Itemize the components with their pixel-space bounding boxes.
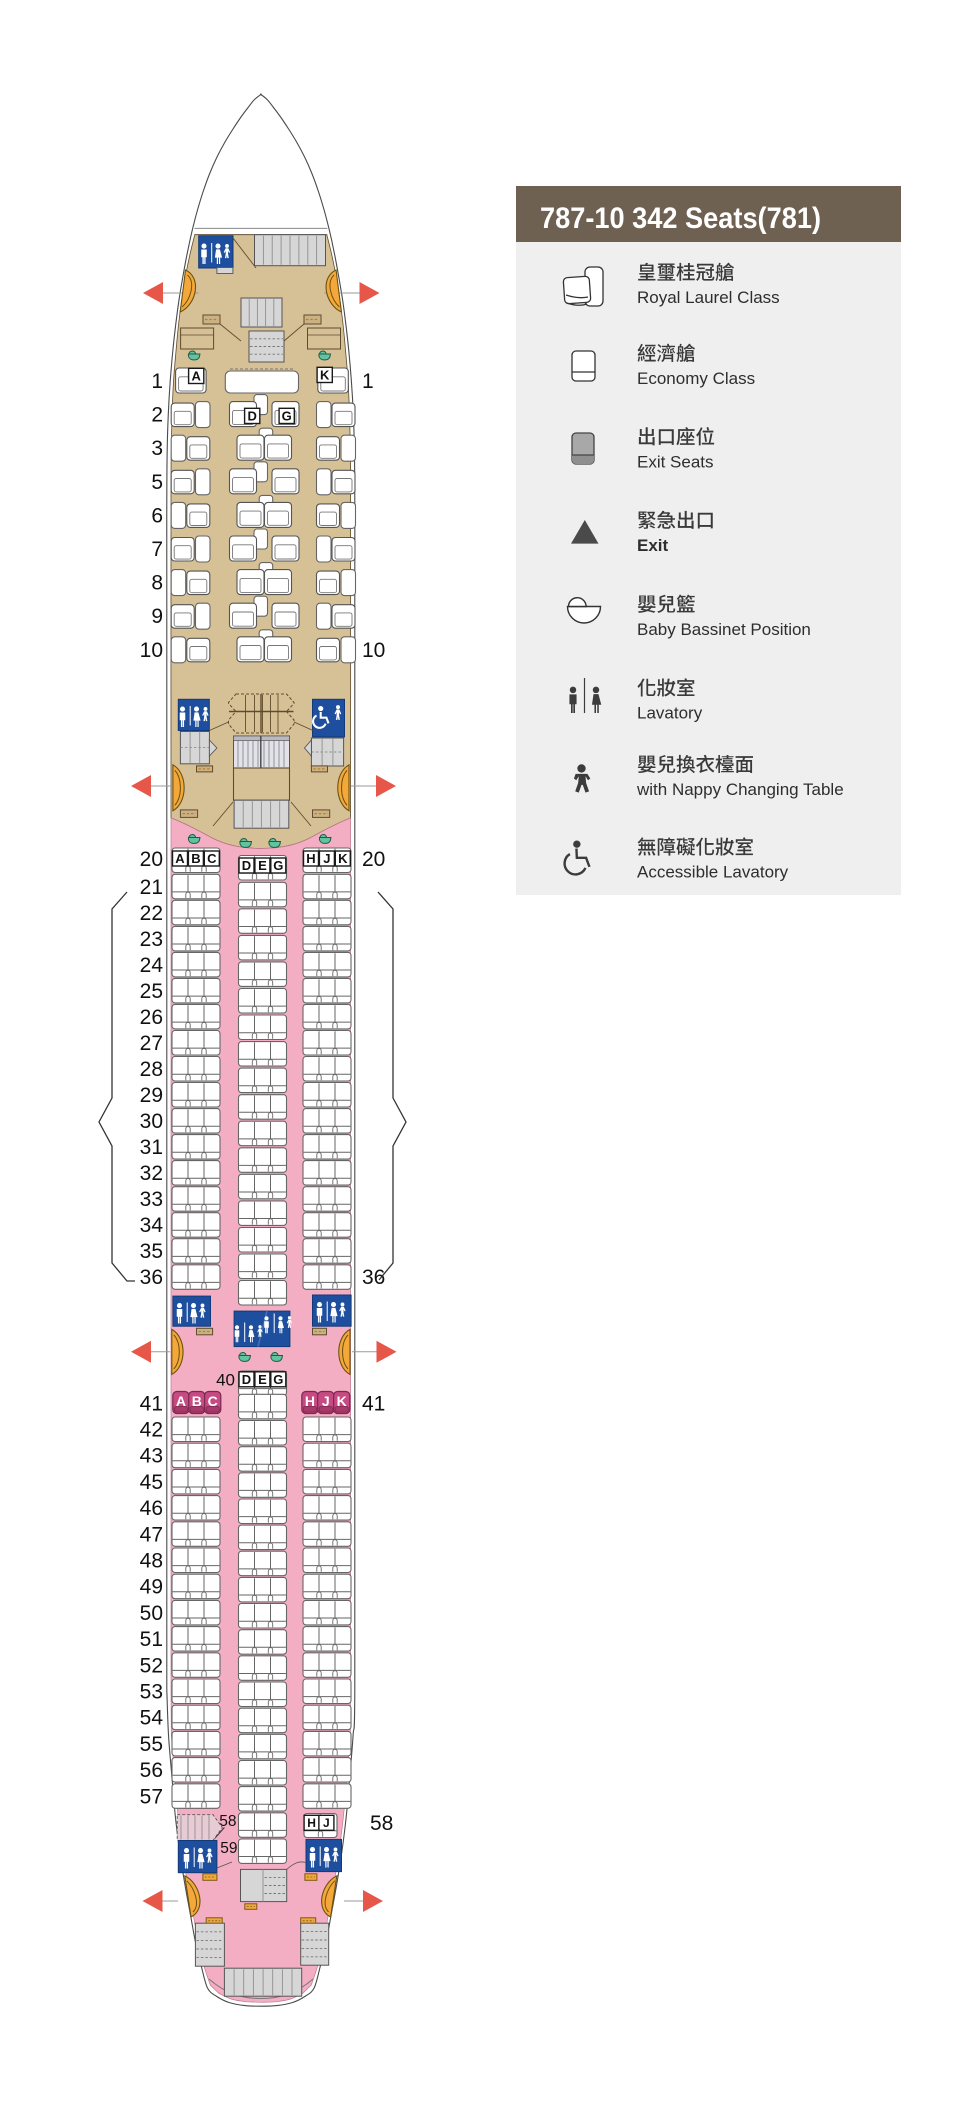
svg-text:45: 45 — [140, 1471, 163, 1494]
svg-text:H: H — [306, 851, 315, 866]
svg-text:40: 40 — [216, 1371, 235, 1390]
svg-text:E: E — [258, 858, 267, 873]
svg-text:27: 27 — [140, 1032, 163, 1055]
svg-text:20: 20 — [140, 848, 163, 871]
svg-text:with Nappy Changing Table: with Nappy Changing Table — [636, 780, 844, 799]
svg-text:51: 51 — [140, 1628, 163, 1651]
svg-text:20: 20 — [362, 848, 385, 871]
svg-text:43: 43 — [140, 1445, 163, 1468]
svg-text:42: 42 — [140, 1419, 163, 1442]
svg-text:G: G — [282, 409, 292, 424]
svg-text:31: 31 — [140, 1136, 163, 1159]
svg-text:1: 1 — [362, 370, 374, 393]
svg-text:54: 54 — [140, 1707, 164, 1730]
svg-text:A: A — [175, 851, 185, 866]
svg-text:47: 47 — [140, 1523, 163, 1546]
svg-text:49: 49 — [140, 1576, 163, 1599]
svg-text:H: H — [305, 1393, 315, 1409]
svg-text:C: C — [207, 851, 217, 866]
svg-text:21: 21 — [140, 876, 163, 899]
svg-text:32: 32 — [140, 1162, 163, 1185]
svg-text:2: 2 — [151, 404, 163, 427]
svg-text:A: A — [176, 1393, 186, 1409]
svg-text:48: 48 — [140, 1550, 163, 1573]
svg-text:28: 28 — [140, 1058, 163, 1081]
svg-text:J: J — [323, 1816, 330, 1830]
svg-text:K: K — [337, 1393, 347, 1409]
svg-text:35: 35 — [140, 1240, 163, 1263]
svg-text:6: 6 — [151, 504, 163, 527]
svg-text:41: 41 — [140, 1393, 163, 1416]
svg-text:Baby Bassinet Position: Baby Bassinet Position — [637, 620, 811, 639]
svg-text:26: 26 — [140, 1006, 163, 1029]
svg-text:C: C — [208, 1393, 218, 1409]
svg-text:B: B — [191, 851, 200, 866]
svg-text:D: D — [248, 409, 257, 424]
svg-text:Economy Class: Economy Class — [637, 369, 755, 388]
svg-text:56: 56 — [140, 1759, 163, 1782]
svg-text:46: 46 — [140, 1497, 163, 1520]
svg-text:58: 58 — [370, 1812, 393, 1835]
svg-text:36: 36 — [362, 1266, 385, 1289]
svg-text:1: 1 — [151, 370, 163, 393]
svg-text:25: 25 — [140, 980, 163, 1003]
svg-text:53: 53 — [140, 1681, 163, 1704]
svg-text:10: 10 — [362, 639, 385, 662]
svg-text:G: G — [273, 1372, 283, 1387]
svg-text:10: 10 — [140, 639, 163, 662]
svg-text:57: 57 — [140, 1785, 163, 1808]
svg-text:52: 52 — [140, 1654, 163, 1677]
svg-text:29: 29 — [140, 1084, 163, 1107]
svg-text:Royal Laurel Class: Royal Laurel Class — [637, 288, 780, 307]
svg-text:J: J — [323, 851, 330, 866]
svg-text:55: 55 — [140, 1733, 163, 1756]
svg-text:G: G — [273, 858, 283, 873]
svg-text:41: 41 — [362, 1393, 385, 1416]
svg-text:B: B — [192, 1393, 202, 1409]
svg-text:787-10 342 Seats(781): 787-10 342 Seats(781) — [540, 202, 821, 235]
svg-text:D: D — [242, 1372, 251, 1387]
svg-text:Exit: Exit — [637, 536, 669, 555]
svg-text:50: 50 — [140, 1602, 163, 1625]
svg-text:30: 30 — [140, 1110, 163, 1133]
svg-text:33: 33 — [140, 1188, 163, 1211]
svg-text:Accessible Lavatory: Accessible Lavatory — [637, 863, 789, 882]
svg-text:3: 3 — [151, 437, 163, 460]
svg-text:Lavatory: Lavatory — [637, 704, 703, 723]
svg-text:Exit Seats: Exit Seats — [637, 452, 714, 471]
svg-text:22: 22 — [140, 902, 163, 925]
svg-text:E: E — [258, 1372, 267, 1387]
svg-text:24: 24 — [140, 954, 164, 977]
svg-text:5: 5 — [151, 471, 163, 494]
svg-text:36: 36 — [140, 1266, 163, 1289]
svg-text:K: K — [320, 368, 330, 383]
svg-text:J: J — [322, 1393, 330, 1409]
svg-text:A: A — [192, 369, 202, 384]
svg-text:8: 8 — [151, 572, 163, 595]
svg-text:H: H — [307, 1816, 316, 1830]
svg-text:34: 34 — [140, 1214, 164, 1237]
svg-text:K: K — [338, 851, 348, 866]
svg-text:23: 23 — [140, 928, 163, 951]
svg-text:7: 7 — [151, 538, 163, 561]
svg-text:59: 59 — [220, 1840, 237, 1857]
svg-text:9: 9 — [151, 605, 163, 628]
svg-text:D: D — [242, 858, 251, 873]
